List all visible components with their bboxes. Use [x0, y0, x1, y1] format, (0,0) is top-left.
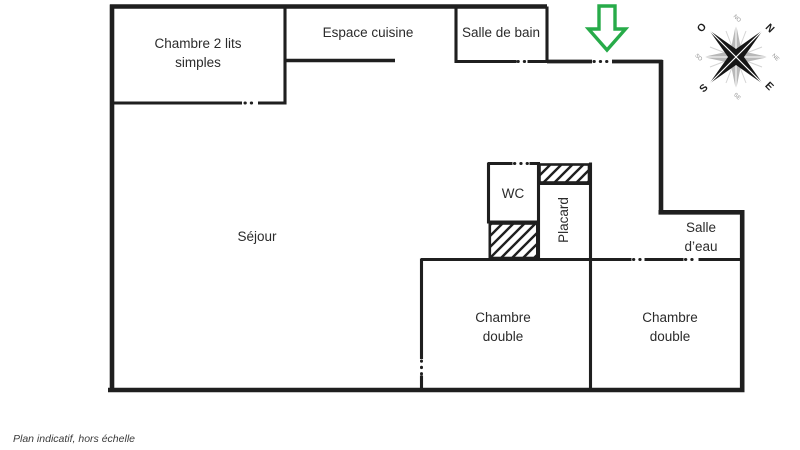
compass-label-east: E [762, 80, 775, 93]
plan-disclaimer: Plan indicatif, hors échelle [13, 433, 135, 445]
room-label-bathroom: Salle de bain [462, 24, 540, 42]
compass-label-west: O [695, 21, 709, 35]
room-label-bedroom-double-right: Chambre double [642, 308, 698, 346]
hatched-area-bottom [490, 224, 538, 259]
label-line: simples [154, 53, 241, 72]
label-line: Salle [684, 218, 717, 237]
floor-plan-drawing: O N S E NO NE SE SO [0, 0, 800, 450]
room-label-wc: WC [502, 185, 525, 203]
compass-label-sw: SO [693, 53, 703, 63]
compass-rose-icon: O N S E NO NE SE SO [693, 14, 780, 102]
compass-label-north: N [763, 21, 777, 35]
door-openings [245, 62, 697, 375]
label-line: Chambre [475, 308, 531, 327]
room-label-kitchen: Espace cuisine [323, 24, 414, 42]
label-line: Chambre 2 lits [154, 34, 241, 53]
compass-label-se: SE [732, 92, 742, 102]
room-label-bedroom-double-left: Chambre double [475, 308, 531, 346]
room-label-closet: Placard [555, 197, 573, 243]
compass-label-south: S [697, 82, 710, 95]
compass-label-nw: NO [732, 14, 743, 25]
floor-plan: O N S E NO NE SE SO Chambre 2 lits simpl… [0, 0, 800, 450]
compass-label-ne: NE [770, 53, 780, 63]
entrance-arrow-icon [589, 6, 626, 50]
room-label-living: Séjour [237, 228, 276, 246]
label-line: double [475, 327, 531, 346]
label-line: Chambre [642, 308, 698, 327]
room-label-bedroom-twin: Chambre 2 lits simples [154, 34, 241, 72]
room-label-shower-room: Salle d’eau [684, 218, 717, 256]
label-line: double [642, 327, 698, 346]
label-line: d’eau [684, 237, 717, 256]
hatched-area-top [540, 165, 590, 183]
